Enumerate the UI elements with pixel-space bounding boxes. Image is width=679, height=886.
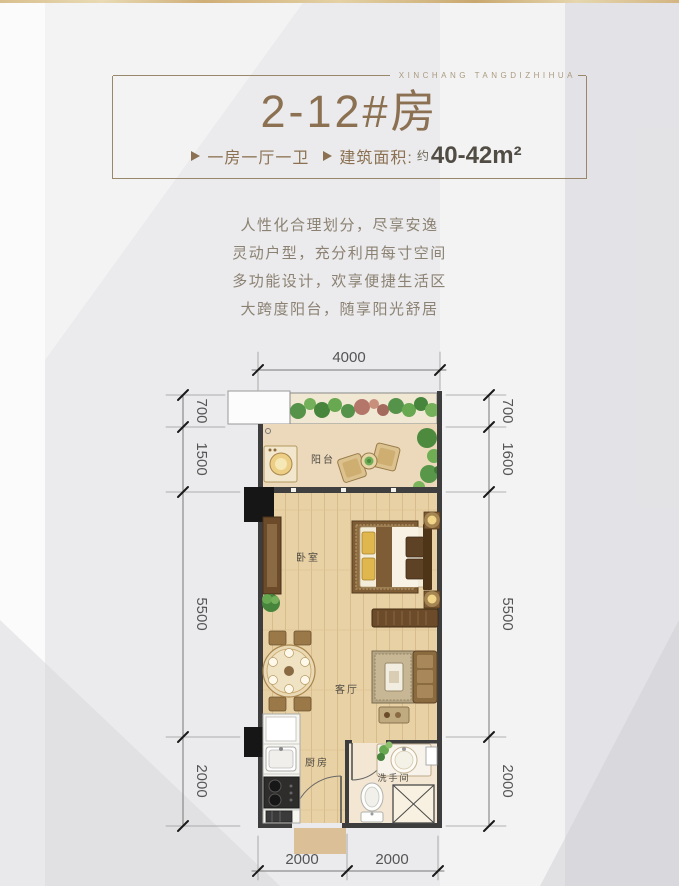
kitchen-appliance — [266, 811, 292, 822]
unit-title: 2-12#房 — [260, 87, 438, 137]
background-facet — [540, 620, 679, 886]
area-value: 40-42m² — [431, 142, 522, 170]
kitchen-sink — [266, 747, 296, 771]
poster: XINCHANG TANGDIZHIHUA 2-12#房 一房一厅一卫 建筑面积… — [0, 0, 679, 886]
dim-top-4000: 4000 — [332, 349, 365, 366]
dim-bottom-2000-a: 2000 — [285, 851, 318, 868]
shower — [393, 785, 434, 823]
dim-right-5500: 5500 — [499, 597, 516, 630]
dimension-left: 700 1500 5500 2000 — [166, 390, 240, 831]
selling-point-line: 大跨度阳台，随享阳光舒居 — [0, 296, 679, 324]
layout-feature: 一房一厅一卫 — [207, 144, 309, 168]
area-label: 建筑面积: — [339, 144, 412, 168]
dim-right-700: 700 — [499, 398, 516, 423]
frame-top-border — [578, 75, 586, 76]
selling-point-line: 人性化合理划分，尽享安逸 — [0, 212, 679, 240]
label-living: 客厅 — [335, 683, 359, 696]
selling-point-line: 多功能设计，欢享便捷生活区 — [0, 268, 679, 296]
dimension-top: 4000 — [252, 349, 446, 390]
selling-point-line: 灵动户型，充分利用每寸空间 — [0, 240, 679, 268]
bed — [352, 521, 432, 593]
label-bedroom: 卧室 — [296, 551, 320, 564]
top-accent-strip — [0, 0, 679, 3]
background-facet — [0, 0, 45, 886]
bedroom-plant — [262, 594, 280, 612]
area-approx: 约 — [417, 147, 430, 164]
label-kitchen: 厨房 — [305, 756, 329, 769]
dim-right-1600: 1600 — [499, 442, 516, 475]
arrow-icon — [191, 151, 200, 161]
arrow-icon — [323, 151, 332, 161]
dimension-bottom: 2000 2000 — [252, 834, 444, 880]
ac-platform — [228, 391, 290, 424]
coffee-table — [385, 663, 403, 691]
toilet — [361, 783, 383, 822]
tv-cabinet — [263, 517, 281, 594]
dim-bottom-2000-b: 2000 — [375, 851, 408, 868]
bed-bench — [372, 609, 438, 627]
side-bench — [379, 707, 409, 723]
floorplan: 阳台 卧室 客厅 厨房 洗手间 4000 700 15 — [150, 336, 540, 886]
dim-left-1500: 1500 — [193, 442, 210, 475]
dim-left-2000: 2000 — [193, 764, 210, 797]
balcony-window — [263, 487, 437, 493]
label-bathroom: 洗手间 — [377, 772, 410, 783]
stove — [264, 777, 299, 808]
bathroom-vanity — [377, 742, 437, 777]
label-balcony: 阳台 — [311, 453, 335, 466]
sofa — [413, 651, 437, 703]
dim-right-2000: 2000 — [499, 764, 516, 797]
dim-left-5500: 5500 — [193, 597, 210, 630]
unit-subtitle: 一房一厅一卫 建筑面积: 约 40-42m² — [177, 142, 521, 170]
washing-machine — [264, 446, 297, 482]
frame-top-border — [113, 75, 390, 76]
selling-points: 人性化合理划分，尽享安逸 灵动户型，充分利用每寸空间 多功能设计，欢享便捷生活区… — [0, 212, 679, 324]
dimension-right: 700 1600 5500 2000 — [446, 390, 516, 831]
brand-tagline: XINCHANG TANGDIZHIHUA — [399, 71, 576, 80]
header-frame: XINCHANG TANGDIZHIHUA 2-12#房 一房一厅一卫 建筑面积… — [112, 76, 587, 179]
dim-left-700: 700 — [193, 398, 210, 423]
